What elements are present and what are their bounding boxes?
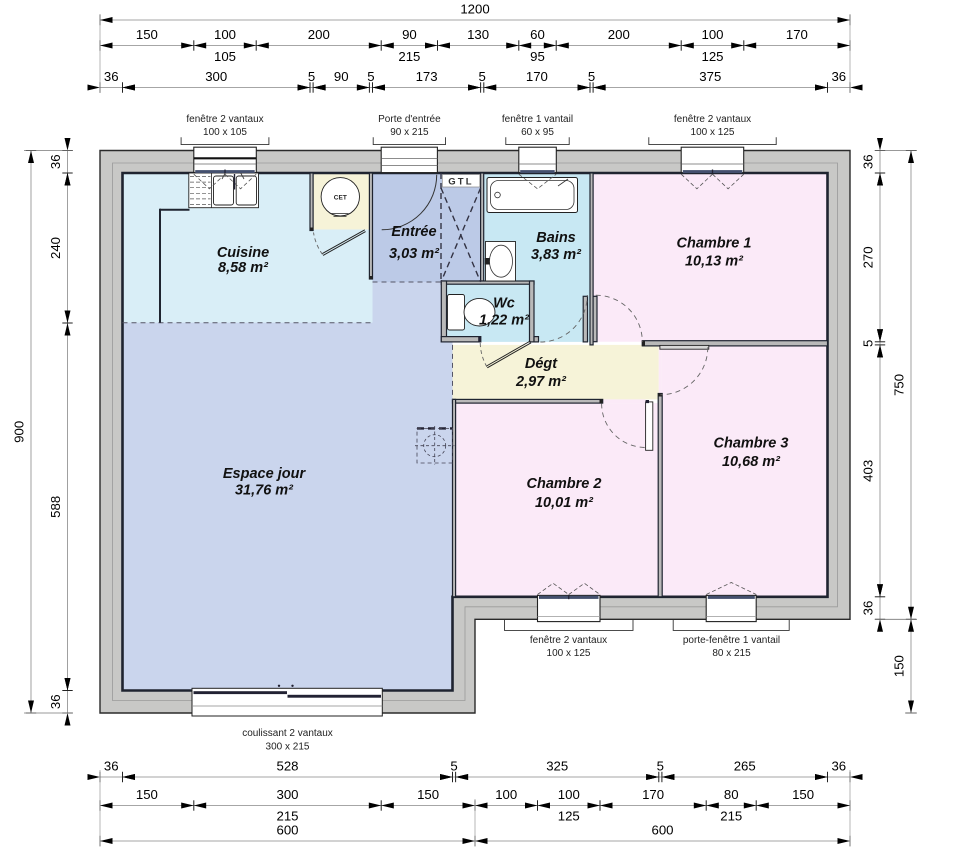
svg-text:105: 105 — [214, 49, 236, 64]
svg-text:fenêtre 2 vantaux: fenêtre 2 vantaux — [674, 114, 751, 125]
svg-text:80: 80 — [724, 787, 739, 802]
svg-text:36: 36 — [48, 694, 63, 709]
svg-text:900: 900 — [12, 421, 27, 443]
svg-text:173: 173 — [416, 69, 438, 84]
svg-text:5: 5 — [861, 340, 876, 347]
svg-text:100: 100 — [214, 27, 236, 42]
svg-text:750: 750 — [892, 374, 907, 396]
svg-text:5: 5 — [450, 759, 457, 774]
svg-text:60: 60 — [530, 27, 545, 42]
svg-text:10,13 m²: 10,13 m² — [685, 254, 744, 270]
svg-text:8,58 m²: 8,58 m² — [218, 260, 269, 276]
svg-text:Chambre 3: Chambre 3 — [714, 436, 789, 452]
svg-text:170: 170 — [642, 787, 664, 802]
svg-text:80 x 215: 80 x 215 — [712, 648, 751, 659]
svg-text:130: 130 — [467, 27, 489, 42]
svg-text:588: 588 — [48, 496, 63, 518]
svg-text:10,68 m²: 10,68 m² — [722, 454, 781, 470]
svg-text:150: 150 — [417, 787, 439, 802]
svg-text:Dégt: Dégt — [525, 356, 558, 372]
svg-text:36: 36 — [831, 69, 846, 84]
svg-text:36: 36 — [48, 154, 63, 169]
svg-text:528: 528 — [276, 759, 298, 774]
svg-text:3,03 m²: 3,03 m² — [389, 246, 440, 262]
svg-text:170: 170 — [526, 69, 548, 84]
svg-text:Cuisine: Cuisine — [217, 245, 269, 261]
svg-text:60 x 95: 60 x 95 — [521, 127, 554, 138]
svg-text:31,76 m²: 31,76 m² — [235, 483, 294, 499]
svg-text:5: 5 — [588, 69, 595, 84]
svg-text:5: 5 — [657, 759, 664, 774]
svg-text:36: 36 — [104, 759, 119, 774]
svg-text:600: 600 — [276, 823, 298, 838]
svg-text:270: 270 — [861, 246, 876, 268]
svg-text:10,01 m²: 10,01 m² — [535, 495, 594, 511]
svg-text:200: 200 — [608, 27, 630, 42]
svg-text:2,97 m²: 2,97 m² — [515, 374, 567, 390]
svg-text:fenêtre 1 vantail: fenêtre 1 vantail — [502, 114, 573, 125]
svg-text:95: 95 — [530, 49, 545, 64]
svg-text:170: 170 — [786, 27, 808, 42]
svg-text:36: 36 — [831, 759, 846, 774]
svg-text:Chambre 2: Chambre 2 — [527, 476, 602, 492]
svg-text:5: 5 — [367, 69, 374, 84]
svg-text:Espace jour: Espace jour — [223, 466, 307, 482]
svg-text:215: 215 — [276, 809, 298, 824]
svg-text:GTL: GTL — [448, 177, 474, 188]
svg-text:100 x 125: 100 x 125 — [547, 648, 591, 659]
svg-text:403: 403 — [861, 460, 876, 482]
svg-text:100 x 105: 100 x 105 — [203, 127, 247, 138]
svg-text:Chambre 1: Chambre 1 — [677, 236, 752, 252]
svg-text:1200: 1200 — [460, 2, 489, 17]
svg-text:300: 300 — [276, 787, 298, 802]
svg-text:CET: CET — [334, 195, 347, 202]
svg-text:porte-fenêtre 1 vantail: porte-fenêtre 1 vantail — [683, 635, 780, 646]
svg-text:coulissant 2 vantaux: coulissant 2 vantaux — [242, 728, 333, 739]
svg-text:150: 150 — [136, 27, 158, 42]
svg-text:36: 36 — [861, 154, 876, 169]
svg-text:3,83 m²: 3,83 m² — [531, 247, 582, 263]
svg-text:fenêtre 2 vantaux: fenêtre 2 vantaux — [186, 114, 263, 125]
svg-text:100 x 125: 100 x 125 — [691, 127, 735, 138]
svg-text:215: 215 — [398, 49, 420, 64]
svg-text:150: 150 — [792, 787, 814, 802]
svg-text:200: 200 — [308, 27, 330, 42]
svg-text:300 x 215: 300 x 215 — [266, 742, 310, 753]
svg-text:90: 90 — [334, 69, 349, 84]
svg-text:Wc: Wc — [493, 296, 515, 312]
svg-text:300: 300 — [205, 69, 227, 84]
svg-text:100: 100 — [495, 787, 517, 802]
svg-text:240: 240 — [48, 237, 63, 259]
svg-text:150: 150 — [892, 655, 907, 677]
svg-text:5: 5 — [308, 69, 315, 84]
svg-text:600: 600 — [651, 823, 673, 838]
svg-text:36: 36 — [861, 601, 876, 616]
svg-text:fenêtre 2 vantaux: fenêtre 2 vantaux — [530, 635, 607, 646]
svg-text:100: 100 — [701, 27, 723, 42]
svg-text:Porte d'entrée: Porte d'entrée — [378, 114, 441, 125]
svg-text:90: 90 — [402, 27, 417, 42]
svg-text:215: 215 — [720, 809, 742, 824]
svg-text:Entrée: Entrée — [391, 224, 436, 240]
svg-text:265: 265 — [734, 759, 756, 774]
svg-text:100: 100 — [558, 787, 580, 802]
svg-text:1,22 m²: 1,22 m² — [479, 313, 530, 329]
svg-text:325: 325 — [546, 759, 568, 774]
svg-text:90 x 215: 90 x 215 — [390, 127, 429, 138]
svg-text:Bains: Bains — [536, 230, 576, 246]
svg-text:125: 125 — [701, 49, 723, 64]
svg-text:5: 5 — [479, 69, 486, 84]
svg-text:36: 36 — [104, 69, 119, 84]
svg-text:125: 125 — [558, 809, 580, 824]
svg-text:375: 375 — [699, 69, 721, 84]
svg-text:150: 150 — [136, 787, 158, 802]
